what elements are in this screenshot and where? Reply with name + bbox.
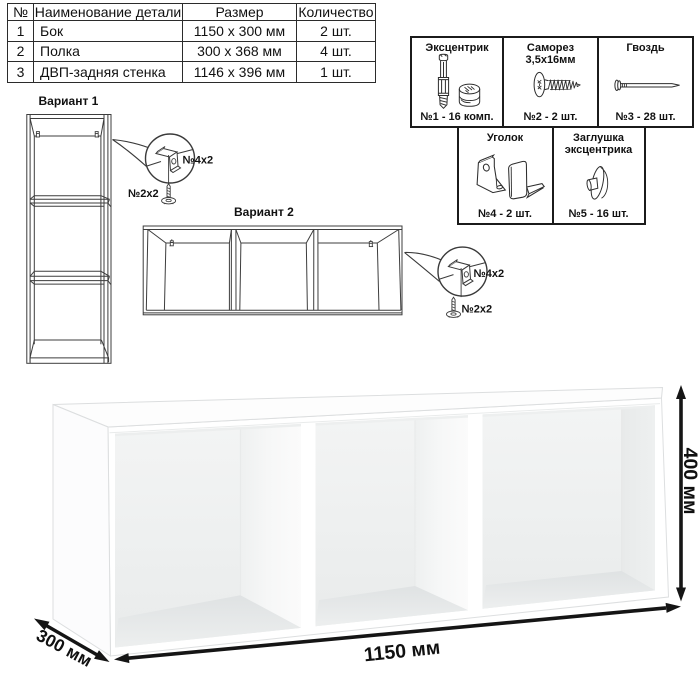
svg-text:1150 мм: 1150 мм: [363, 637, 441, 667]
svg-text:№4х2: №4х2: [183, 155, 214, 167]
svg-text:№2х2: №2х2: [462, 304, 493, 316]
svg-text:400 мм: 400 мм: [679, 448, 700, 515]
svg-text:№2х2: №2х2: [128, 188, 159, 200]
svg-text:№4х2: №4х2: [474, 268, 505, 280]
